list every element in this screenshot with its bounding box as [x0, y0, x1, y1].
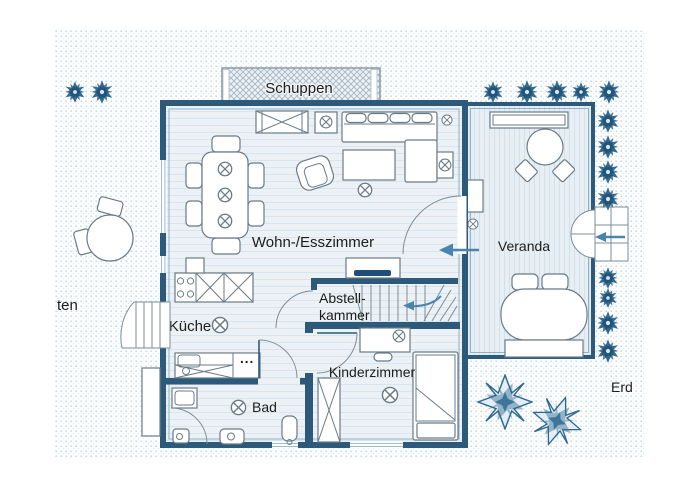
flower-box	[142, 368, 160, 436]
desk-lamp-icon	[393, 330, 405, 342]
veranda-loveseat	[501, 289, 587, 340]
window-bottom-bath	[272, 442, 298, 449]
living-lamp-icon	[358, 183, 371, 196]
wall-storage-top	[311, 278, 458, 284]
exterior-kitchen-steps	[121, 302, 170, 348]
door-opening-veranda	[458, 196, 467, 254]
side-table-lamp-icon	[439, 159, 451, 171]
veranda-bench	[490, 112, 568, 128]
bath-label: Bad	[252, 399, 277, 415]
floor-plan: Schuppen Veranda	[0, 0, 700, 500]
star-plant-icon	[478, 375, 532, 429]
veranda-loveseat-cushion-2	[542, 274, 568, 290]
wall-kids-left	[305, 373, 313, 445]
kitchen-label: Küche	[169, 318, 212, 335]
washbasin	[220, 429, 244, 444]
shed-post-left	[223, 70, 229, 102]
plate-icon-2	[218, 188, 231, 201]
corner-lamp-icon	[442, 115, 452, 125]
floor-partial-label: Erd	[611, 379, 633, 395]
tv-screen	[354, 270, 391, 276]
kitchen-counter-top	[175, 273, 253, 302]
dining-chair-bottom	[212, 238, 240, 254]
bath-lamp-icon	[231, 400, 245, 414]
dining-chair-left-1	[186, 163, 202, 188]
dining-chair-left-2	[186, 201, 202, 226]
veranda-label: Veranda	[498, 238, 550, 254]
dining-chair-top	[212, 136, 240, 152]
window-left-living	[160, 160, 167, 233]
sofa-cushion-1	[346, 114, 366, 123]
shed-label: Schuppen	[265, 80, 333, 97]
sofa-chaise	[405, 140, 437, 182]
kids-lamp-icon	[382, 387, 397, 402]
storage-label-line1: Abstell-	[319, 290, 366, 306]
kids-bed-pillow	[417, 423, 455, 438]
veranda-footboard	[505, 340, 583, 357]
veranda-table	[527, 129, 563, 165]
window-bottom-kids	[350, 442, 403, 449]
kids-desk-chair	[374, 353, 392, 361]
sofa-cushion-2	[368, 114, 388, 123]
bath-fixture-right	[282, 416, 297, 441]
plate-icon-3	[218, 214, 231, 227]
sofa-cushion-3	[390, 114, 410, 123]
kitchen-upper-box	[186, 258, 204, 273]
exterior-stairs-veranda	[571, 207, 628, 261]
shed-post-right	[371, 70, 377, 102]
veranda-loveseat-cushion-1	[512, 274, 538, 290]
veranda-lamp-icon	[468, 219, 478, 229]
dining-chair-right-2	[248, 201, 264, 226]
wall-storage-left	[311, 278, 317, 290]
cabinet-lamp-icon	[320, 116, 332, 128]
kitchen-steps-platform	[121, 302, 170, 348]
coffee-table	[343, 150, 395, 180]
window-left-kitchen	[160, 256, 167, 273]
veranda-wall-cabinet	[466, 180, 483, 212]
toilet	[173, 429, 189, 443]
living-label: Wohn-/Esszimmer	[252, 234, 374, 251]
kids-label: Kinderzimmer	[329, 364, 416, 380]
garden-partial-label: ten	[57, 297, 78, 314]
kitchen-lamp-icon	[212, 317, 227, 332]
plate-icon-1	[218, 162, 231, 175]
dining-chair-right-1	[248, 163, 264, 188]
kitchen-dots: ...	[240, 351, 254, 366]
sofa-cushion-4	[412, 114, 432, 123]
wall-bath-top-left	[163, 378, 258, 385]
floor-plan-page: Schuppen Veranda	[0, 0, 700, 500]
shed: Schuppen	[222, 68, 380, 103]
storage-label-line2: kammer	[319, 307, 370, 323]
garden-table	[87, 215, 133, 261]
